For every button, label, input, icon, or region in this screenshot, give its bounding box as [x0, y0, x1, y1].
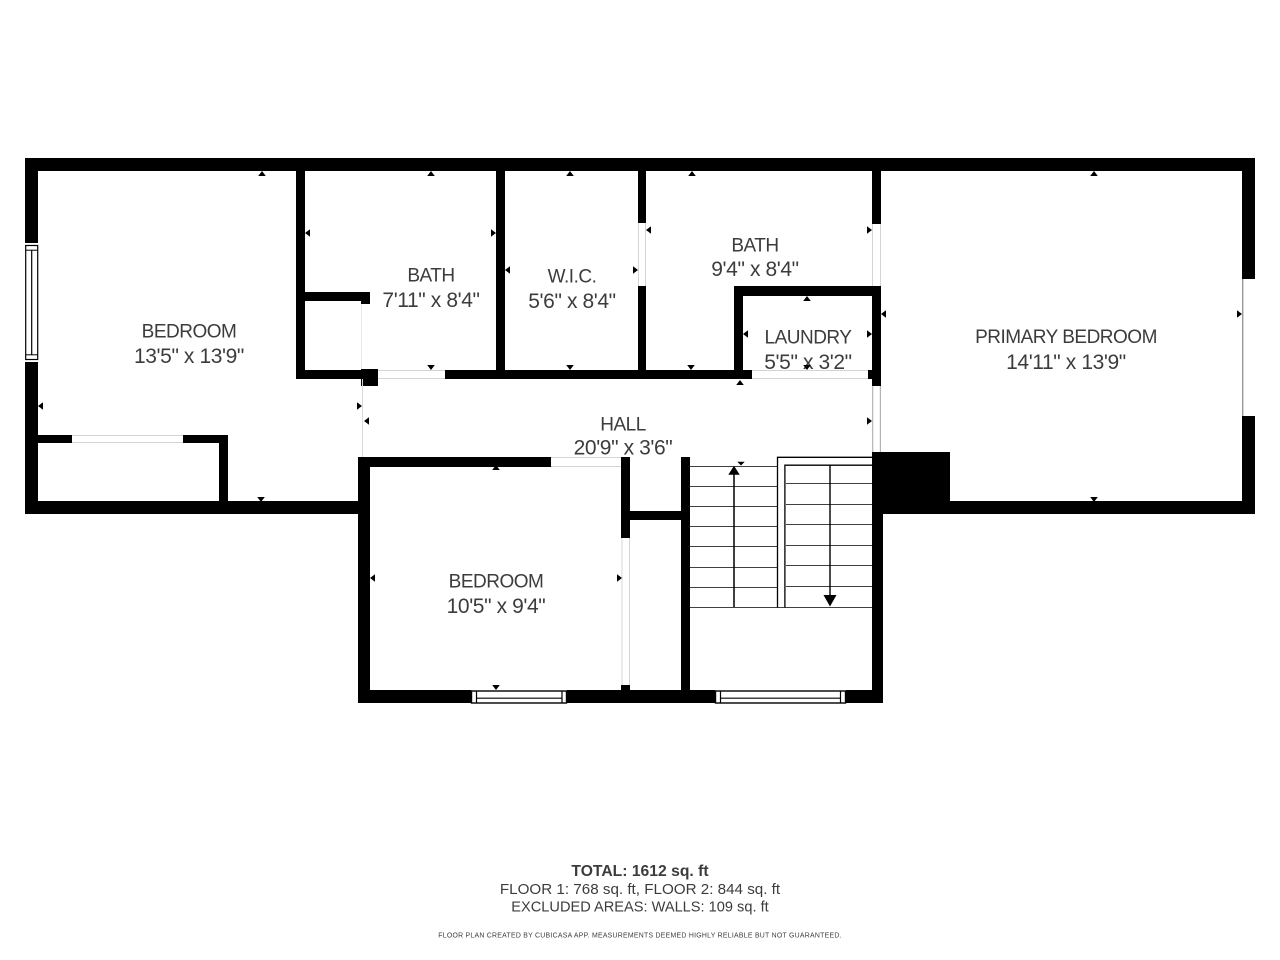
svg-text:TOTAL: 1612 sq. ft: TOTAL: 1612 sq. ft — [571, 863, 709, 880]
svg-text:10'5" x 9'4": 10'5" x 9'4" — [447, 595, 546, 618]
svg-text:W.I.C.: W.I.C. — [548, 267, 597, 288]
svg-text:EXCLUDED AREAS: WALLS: 109 sq.: EXCLUDED AREAS: WALLS: 109 sq. ft — [511, 900, 768, 916]
svg-text:9'4" x 8'4": 9'4" x 8'4" — [711, 258, 798, 281]
svg-text:5'6" x 8'4": 5'6" x 8'4" — [528, 290, 615, 313]
svg-text:BEDROOM: BEDROOM — [142, 322, 237, 343]
svg-text:LAUNDRY: LAUNDRY — [765, 328, 853, 349]
svg-text:BATH: BATH — [407, 266, 454, 287]
svg-text:FLOOR PLAN CREATED BY CUBICASA: FLOOR PLAN CREATED BY CUBICASA APP. MEAS… — [438, 933, 842, 940]
svg-text:7'11" x 8'4": 7'11" x 8'4" — [382, 289, 479, 312]
svg-text:14'11" x 13'9": 14'11" x 13'9" — [1006, 351, 1126, 374]
svg-text:BATH: BATH — [731, 236, 778, 257]
svg-text:13'5" x 13'9": 13'5" x 13'9" — [134, 345, 244, 368]
svg-text:20'9" x 3'6": 20'9" x 3'6" — [574, 437, 673, 460]
svg-text:HALL: HALL — [600, 415, 646, 436]
svg-text:PRIMARY BEDROOM: PRIMARY BEDROOM — [975, 327, 1157, 348]
svg-text:BEDROOM: BEDROOM — [449, 572, 544, 593]
svg-text:FLOOR 1: 768 sq. ft, FLOOR 2:: FLOOR 1: 768 sq. ft, FLOOR 2: 844 sq. ft — [500, 881, 781, 898]
